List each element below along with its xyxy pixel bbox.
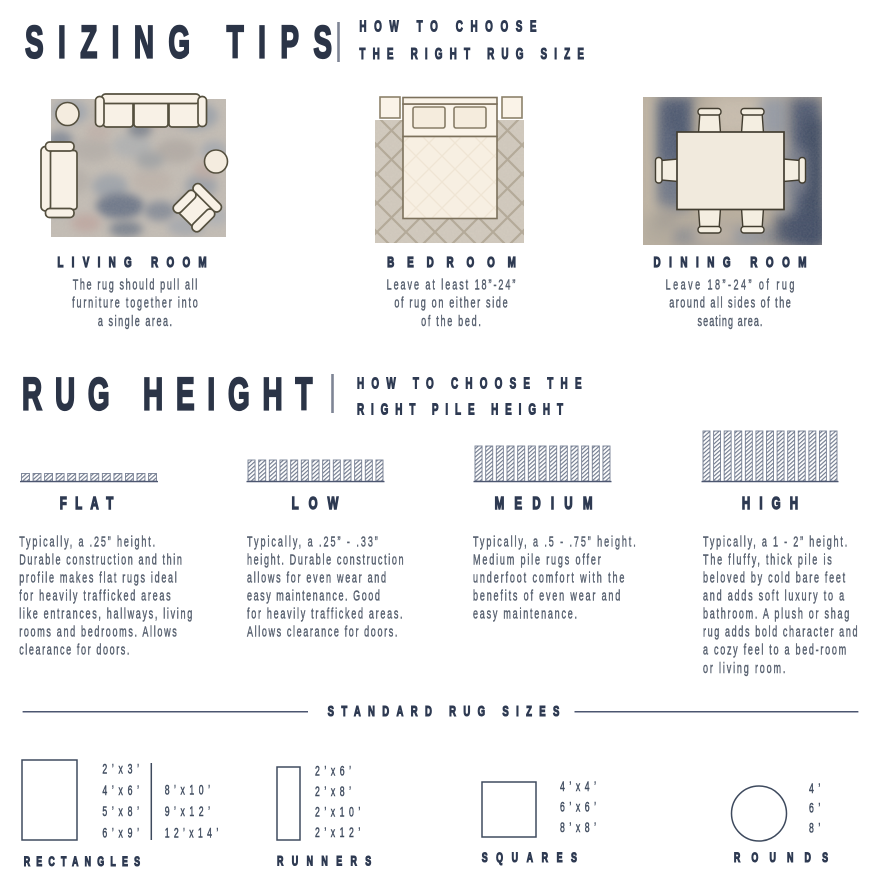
svg-text:a single area.: a single area.	[98, 313, 172, 330]
svg-text:rooms and bedrooms. Allows: rooms and bedrooms. Allows	[19, 623, 177, 640]
svg-text:seating area.: seating area.	[698, 313, 763, 330]
svg-text:The rug should pull all: The rug should pull all	[73, 276, 198, 293]
svg-text:a cozy feel to a bed-room: a cozy feel to a bed-room	[703, 641, 846, 658]
svg-text:easy maintenance. Good: easy maintenance. Good	[247, 587, 380, 604]
svg-text:for heavily trafficked areas: for heavily trafficked areas	[19, 587, 170, 604]
svg-text:bathroom. A plush or shag: bathroom. A plush or shag	[703, 605, 849, 622]
svg-text:furniture together into: furniture together into	[72, 294, 198, 311]
svg-text:HOW TO CHOOSE THE: HOW TO CHOOSE THE	[357, 374, 582, 392]
svg-text:and adds soft luxury to a: and adds soft luxury to a	[703, 587, 844, 604]
svg-text:easy maintenance.: easy maintenance.	[473, 605, 577, 622]
svg-text:of the bed.: of the bed.	[421, 313, 481, 330]
svg-text:LOW: LOW	[292, 495, 339, 514]
svg-text:allows for even wear and: allows for even wear and	[247, 569, 386, 586]
svg-text:RIGHT PILE HEIGHT: RIGHT PILE HEIGHT	[357, 400, 563, 418]
svg-text:around all sides of the: around all sides of the	[669, 294, 791, 311]
svg-text:Typically, a .25” height.: Typically, a .25” height.	[19, 533, 155, 550]
svg-text:benefits of even wear and: benefits of even wear and	[473, 587, 620, 604]
svg-text:clearance for doors.: clearance for doors.	[19, 641, 129, 658]
svg-text:Allows clearance for doors.: Allows clearance for doors.	[247, 623, 397, 640]
svg-text:or living room.: or living room.	[703, 660, 785, 677]
